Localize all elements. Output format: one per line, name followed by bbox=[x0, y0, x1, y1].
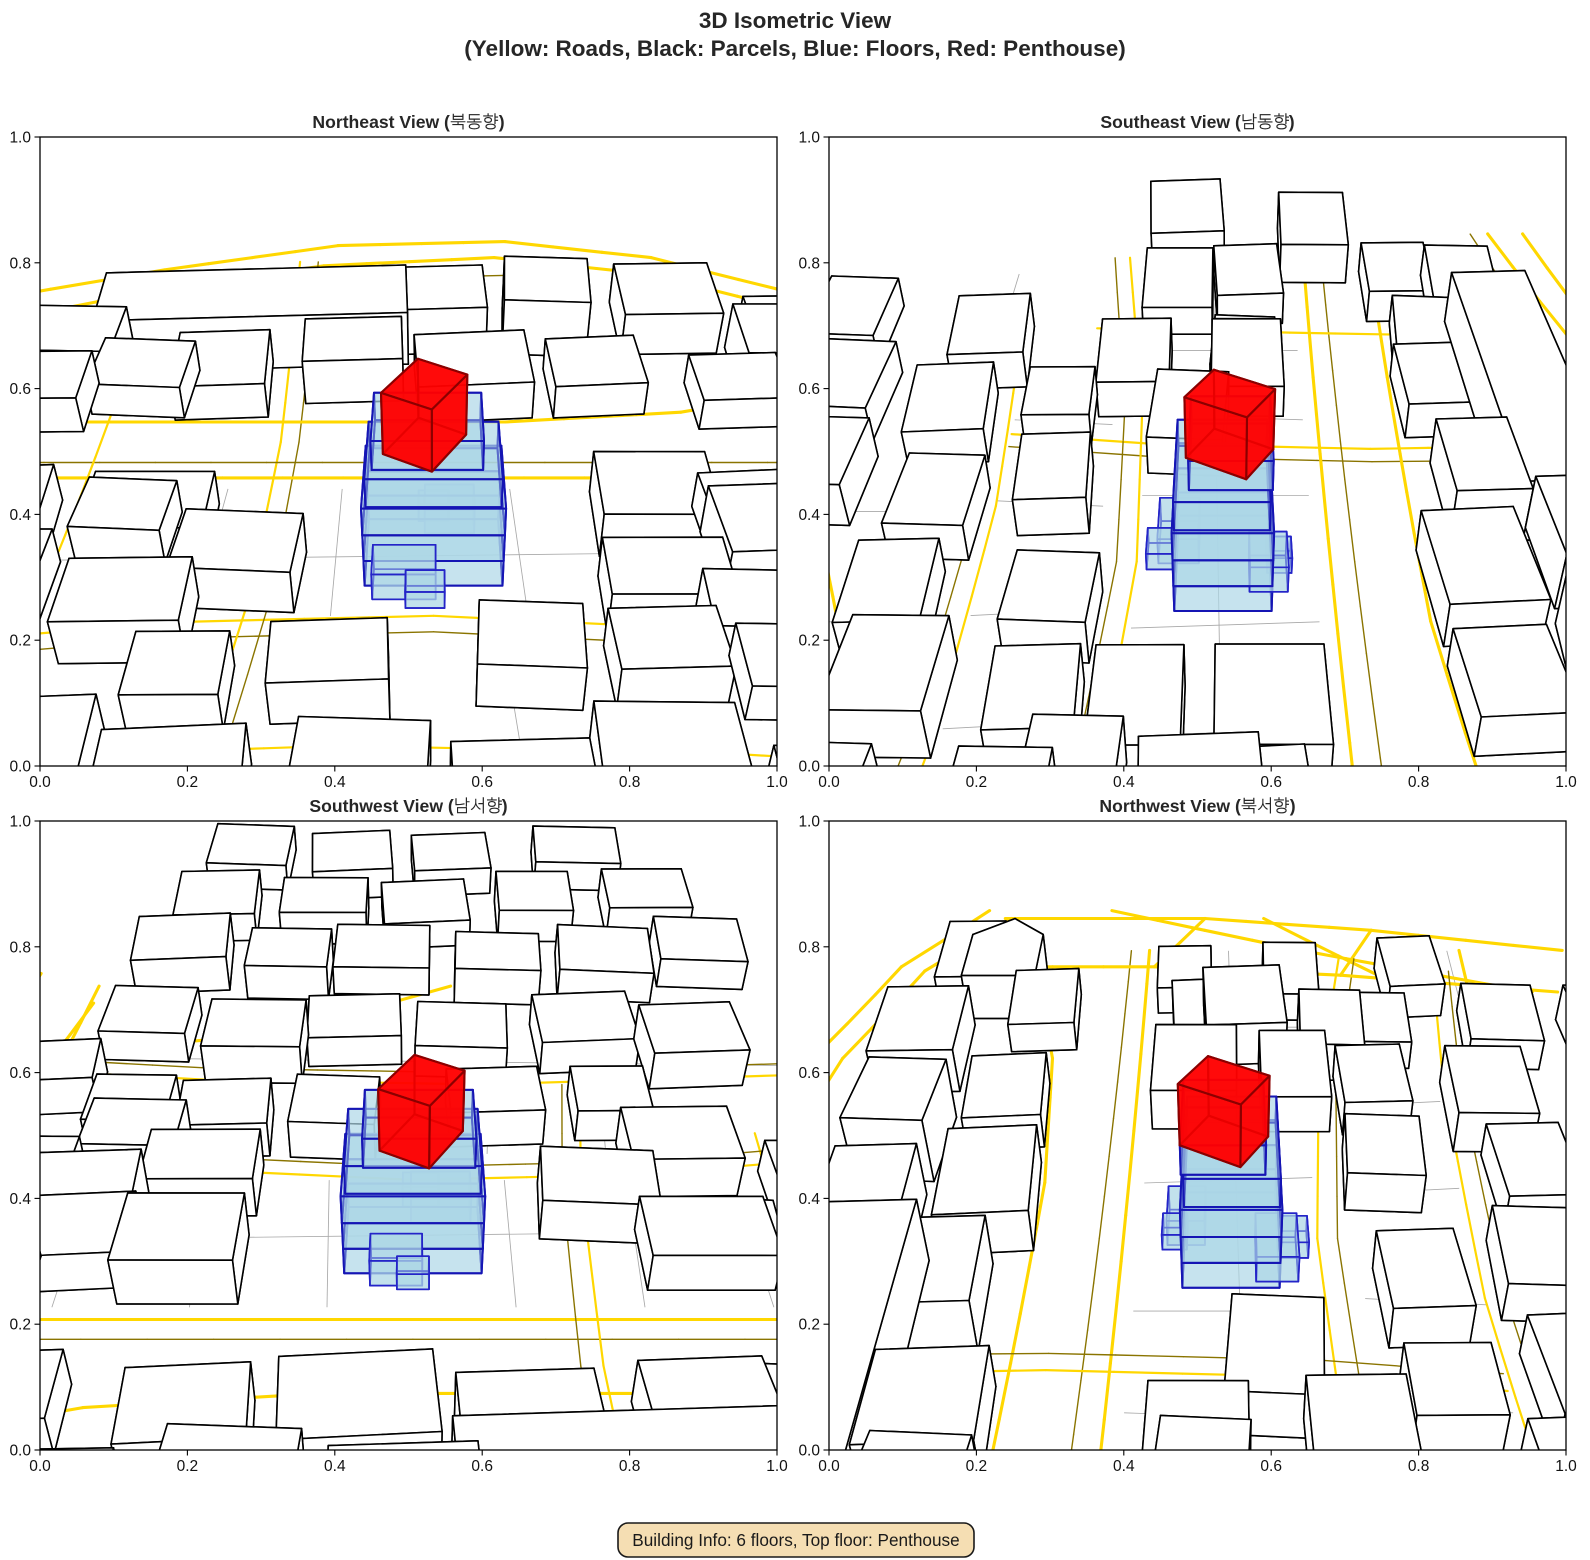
svg-text:): ) bbox=[502, 796, 508, 816]
svg-text:0.4: 0.4 bbox=[324, 774, 346, 791]
svg-text:0.0: 0.0 bbox=[818, 1458, 840, 1475]
svg-text:0.6: 0.6 bbox=[798, 381, 820, 398]
svg-text:0.0: 0.0 bbox=[798, 1443, 820, 1460]
svg-text:1.0: 1.0 bbox=[798, 130, 820, 147]
svg-text:0.0: 0.0 bbox=[29, 1458, 51, 1475]
svg-text:0.6: 0.6 bbox=[798, 1065, 820, 1082]
svg-text:0.2: 0.2 bbox=[798, 633, 820, 650]
svg-text:0.6: 0.6 bbox=[9, 381, 31, 398]
svg-text:0.8: 0.8 bbox=[798, 255, 820, 272]
svg-text:1.0: 1.0 bbox=[1555, 774, 1577, 791]
svg-text:Building Info: 6 floors, Top f: Building Info: 6 floors, Top floor: Pent… bbox=[632, 1530, 959, 1550]
svg-text:0.2: 0.2 bbox=[966, 1458, 988, 1475]
svg-text:0.8: 0.8 bbox=[619, 774, 641, 791]
svg-text:0.0: 0.0 bbox=[9, 1443, 31, 1460]
svg-text:0.8: 0.8 bbox=[9, 939, 31, 956]
svg-text:0.4: 0.4 bbox=[798, 1191, 820, 1208]
svg-text:0.6: 0.6 bbox=[471, 774, 493, 791]
svg-text:0.8: 0.8 bbox=[1408, 774, 1430, 791]
svg-text:1.0: 1.0 bbox=[766, 1458, 788, 1475]
svg-text:): ) bbox=[1289, 112, 1295, 132]
svg-text:): ) bbox=[499, 112, 505, 132]
svg-text:1.0: 1.0 bbox=[9, 130, 31, 147]
svg-text:1.0: 1.0 bbox=[1555, 1458, 1577, 1475]
svg-text:0.2: 0.2 bbox=[966, 774, 988, 791]
svg-text:Northwest View (: Northwest View ( bbox=[1099, 796, 1241, 816]
svg-text:1.0: 1.0 bbox=[798, 814, 820, 831]
svg-text:0.4: 0.4 bbox=[324, 1458, 346, 1475]
svg-text:0.2: 0.2 bbox=[177, 1458, 199, 1475]
svg-text:0.8: 0.8 bbox=[798, 939, 820, 956]
svg-text:0.4: 0.4 bbox=[1113, 1458, 1135, 1475]
svg-text:0.4: 0.4 bbox=[798, 507, 820, 524]
svg-text:0.2: 0.2 bbox=[9, 1317, 31, 1334]
svg-text:0.8: 0.8 bbox=[9, 255, 31, 272]
svg-text:0.0: 0.0 bbox=[818, 774, 840, 791]
svg-text:0.2: 0.2 bbox=[177, 774, 199, 791]
svg-text:Northeast View (: Northeast View ( bbox=[312, 112, 450, 132]
svg-text:Southwest View (: Southwest View ( bbox=[309, 796, 453, 816]
svg-text:0.6: 0.6 bbox=[1260, 774, 1282, 791]
svg-text:1.0: 1.0 bbox=[766, 774, 788, 791]
svg-text:0.8: 0.8 bbox=[1408, 1458, 1430, 1475]
svg-text:0.6: 0.6 bbox=[471, 1458, 493, 1475]
svg-text:Southeast View (: Southeast View ( bbox=[1100, 112, 1241, 132]
svg-text:0.2: 0.2 bbox=[798, 1317, 820, 1334]
svg-text:): ) bbox=[1290, 796, 1296, 816]
svg-text:0.0: 0.0 bbox=[9, 759, 31, 776]
svg-text:0.0: 0.0 bbox=[798, 759, 820, 776]
svg-text:0.0: 0.0 bbox=[29, 774, 51, 791]
svg-text:0.2: 0.2 bbox=[9, 633, 31, 650]
svg-text:(Yellow: Roads, Black: Parcels: (Yellow: Roads, Black: Parcels, Blue: Fl… bbox=[464, 36, 1125, 61]
svg-text:1.0: 1.0 bbox=[9, 814, 31, 831]
svg-text:0.4: 0.4 bbox=[9, 1191, 31, 1208]
svg-text:3D Isometric View: 3D Isometric View bbox=[699, 8, 892, 33]
svg-text:0.6: 0.6 bbox=[1260, 1458, 1282, 1475]
svg-text:0.4: 0.4 bbox=[1113, 774, 1135, 791]
svg-text:0.4: 0.4 bbox=[9, 507, 31, 524]
svg-text:0.6: 0.6 bbox=[9, 1065, 31, 1082]
svg-text:0.8: 0.8 bbox=[619, 1458, 641, 1475]
